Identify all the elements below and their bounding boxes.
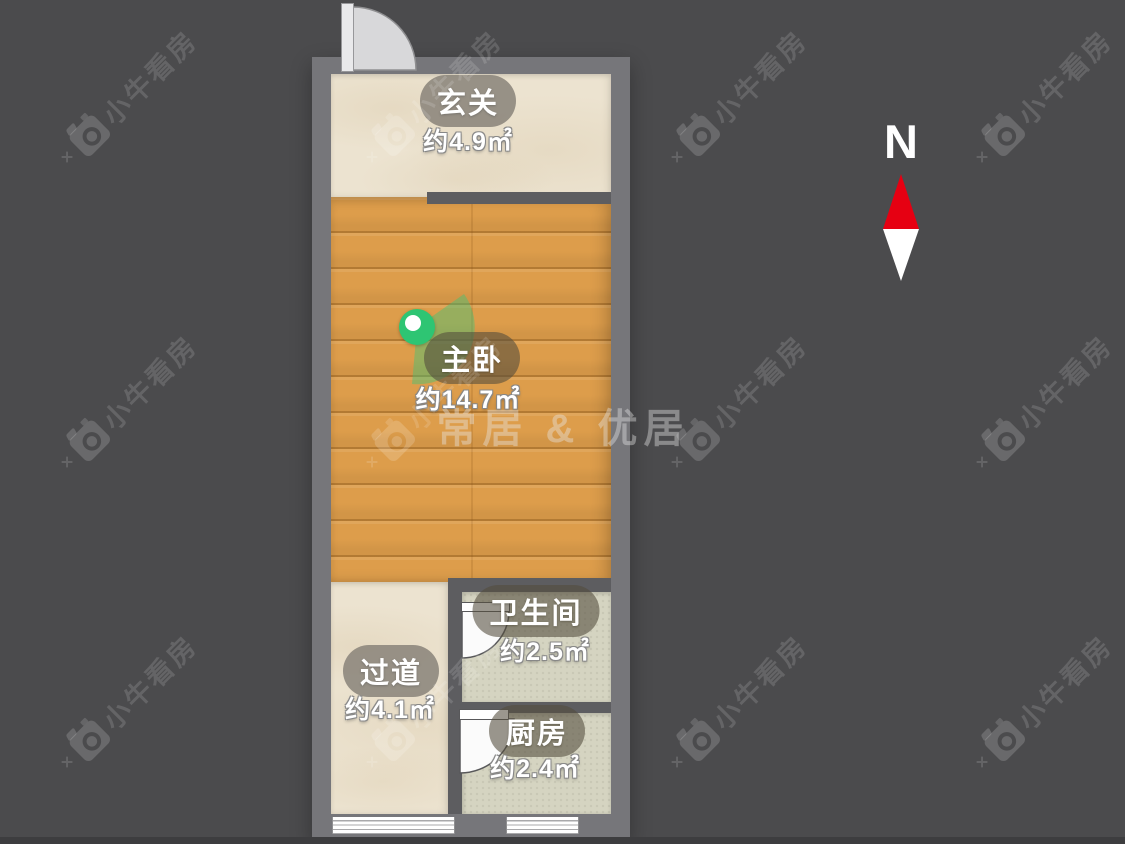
brand-watermark: ✕小牛看房 (660, 325, 815, 480)
brand-watermark: ✕小牛看房 (50, 325, 205, 480)
camera-logo-icon (67, 113, 112, 158)
brand-watermark-text: 小牛看房 (92, 20, 204, 132)
floor-plan: 玄关 约4.9㎡ 主卧 约14.7㎡ 过道 约4.1㎡ 卫生间 约2.5㎡ 厨房… (312, 57, 630, 840)
sparkle-icon: ✕ (57, 450, 79, 472)
camera-logo-icon (67, 718, 112, 763)
sparkle-icon: ✕ (57, 750, 79, 772)
room-name: 过道 (360, 658, 422, 690)
room-area-entry: 约4.9㎡ (423, 122, 513, 158)
camera-logo-icon (677, 113, 722, 158)
brand-watermark-text: 小牛看房 (1007, 20, 1119, 132)
bottom-edge-strip (0, 837, 1125, 844)
brand-watermark: ✕小牛看房 (965, 325, 1120, 480)
room-area-kitchen: 约2.4㎡ (490, 749, 580, 785)
brand-watermark-text: 小牛看房 (92, 325, 204, 437)
room-name: 卫生间 (489, 598, 582, 630)
room-name: 玄关 (437, 88, 499, 120)
brand-watermark-text: 小牛看房 (702, 325, 814, 437)
brand-watermark-text: 小牛看房 (92, 625, 204, 737)
brand-watermark-text: 小牛看房 (702, 625, 814, 737)
brand-watermark: ✕小牛看房 (660, 625, 815, 780)
brand-watermark: ✕小牛看房 (965, 20, 1120, 175)
camera-logo-icon (677, 718, 722, 763)
room-name: 主卧 (441, 345, 503, 377)
room-area-hallway: 约4.1㎡ (345, 690, 435, 726)
brand-watermark-text: 小牛看房 (702, 20, 814, 132)
room-name: 厨房 (506, 718, 568, 750)
brand-watermark: ✕小牛看房 (965, 625, 1120, 780)
sparkle-icon: ✕ (972, 750, 994, 772)
sparkle-icon: ✕ (667, 450, 689, 472)
wall-left (312, 57, 331, 840)
camera-logo-icon (982, 718, 1027, 763)
camera-logo-icon (982, 113, 1027, 158)
sparkle-icon: ✕ (972, 145, 994, 167)
wall-right (611, 57, 630, 840)
room-label-master-bedroom: 主卧 (424, 332, 520, 384)
panorama-marker[interactable] (399, 309, 435, 345)
room-area-bathroom: 约2.5㎡ (500, 632, 590, 668)
compass-north-label: N (865, 118, 937, 166)
panorama-marker-dot (405, 315, 421, 331)
camera-logo-icon (982, 418, 1027, 463)
sparkle-icon: ✕ (57, 145, 79, 167)
door-leaf (342, 4, 354, 72)
wall-bedroom-step (427, 192, 611, 204)
camera-logo-icon (67, 418, 112, 463)
entrance-door (341, 3, 417, 73)
room-label-bathroom: 卫生间 (472, 585, 599, 637)
compass: N (865, 118, 937, 282)
floorplan-viewer: 玄关 约4.9㎡ 主卧 约14.7㎡ 过道 约4.1㎡ 卫生间 约2.5㎡ 厨房… (0, 0, 1125, 844)
door-swing-arc (353, 7, 416, 70)
sparkle-icon: ✕ (667, 750, 689, 772)
window-hallway (332, 817, 455, 834)
room-area-master-bedroom: 约14.7㎡ (416, 380, 521, 416)
brand-watermark: ✕小牛看房 (660, 20, 815, 175)
brand-watermark: ✕小牛看房 (50, 625, 205, 780)
brand-watermark: ✕小牛看房 (50, 20, 205, 175)
camera-logo-icon (677, 418, 722, 463)
brand-watermark-text: 小牛看房 (1007, 325, 1119, 437)
window-kitchen (506, 817, 579, 834)
north-arrow-icon (883, 174, 919, 282)
sparkle-icon: ✕ (972, 450, 994, 472)
sparkle-icon: ✕ (667, 145, 689, 167)
wall-bathroom-left (448, 578, 462, 814)
brand-watermark-text: 小牛看房 (1007, 625, 1119, 737)
room-label-entry: 玄关 (420, 75, 516, 127)
